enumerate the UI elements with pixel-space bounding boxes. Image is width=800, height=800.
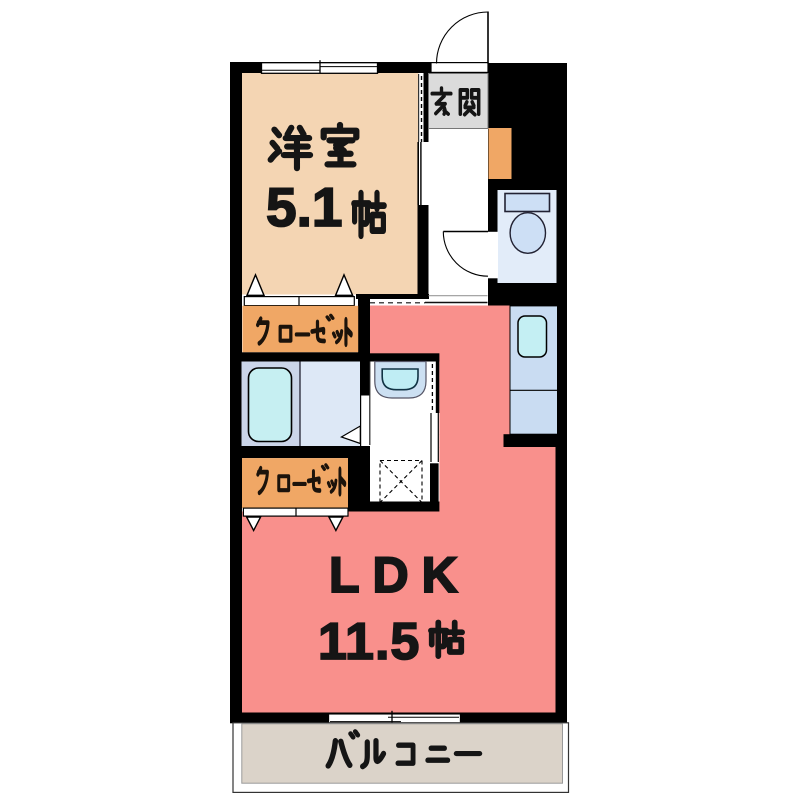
svg-text:LDK: LDK (329, 547, 471, 603)
svg-text:5.1: 5.1 (266, 176, 342, 238)
svg-text:11.5: 11.5 (318, 613, 420, 671)
